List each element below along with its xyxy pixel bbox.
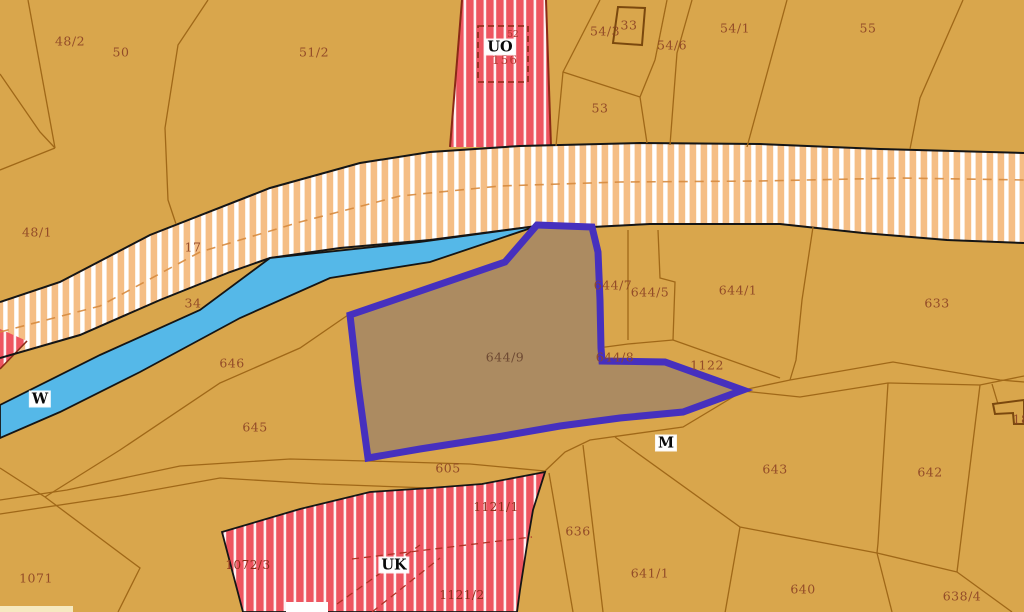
map-viewport[interactable]: 48/25051/254/33354/654/1555348/117346466… [0, 0, 1024, 612]
cadastral-map[interactable] [0, 0, 1024, 612]
cut-label-box-center [286, 602, 328, 612]
cut-label-box-left [0, 606, 73, 612]
zone-uo-strip [450, 0, 551, 147]
